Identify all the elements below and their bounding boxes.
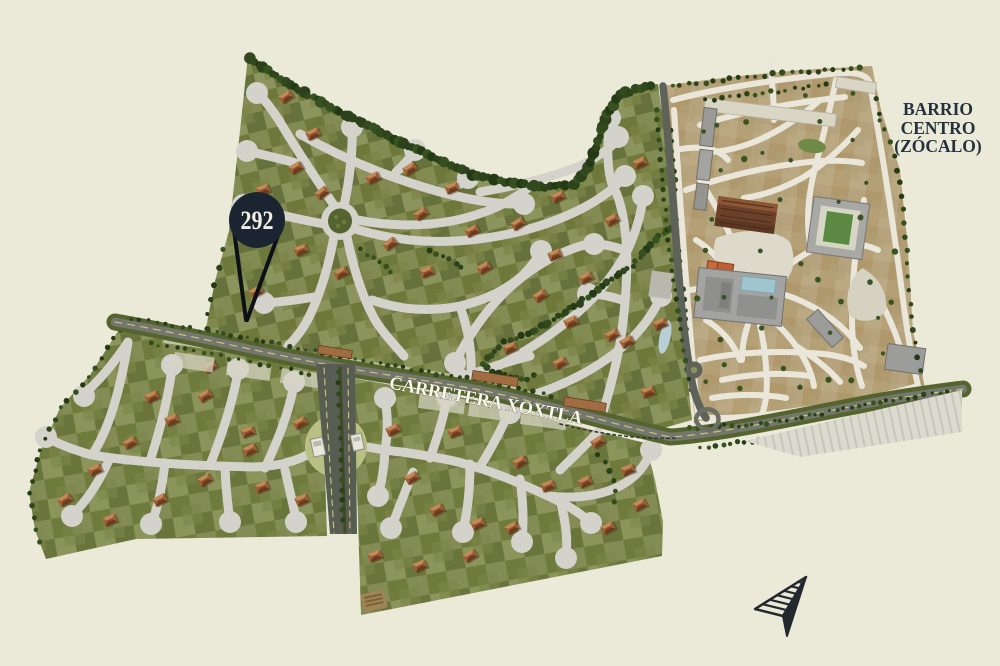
svg-text:BARRIO: BARRIO xyxy=(903,99,973,119)
svg-text:(ZÓCALO): (ZÓCALO) xyxy=(894,136,982,156)
svg-text:292: 292 xyxy=(241,206,274,235)
svg-text:CENTRO: CENTRO xyxy=(901,118,976,138)
